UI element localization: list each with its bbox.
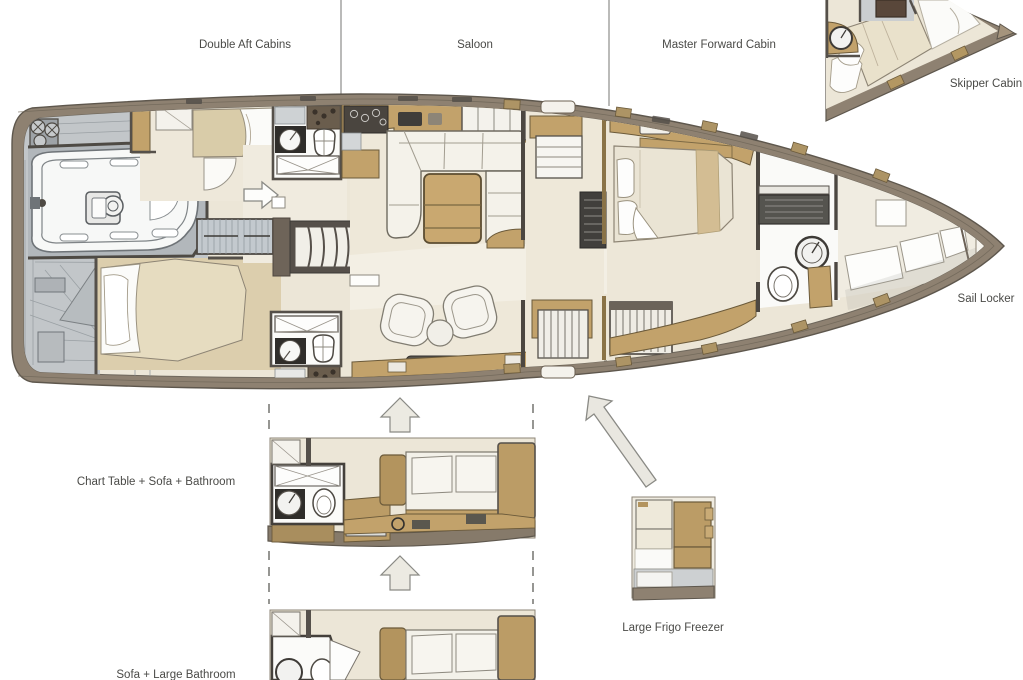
svg-text:Sofa + Large Bathroom: Sofa + Large Bathroom [116, 669, 235, 680]
svg-text:Large Frigo Freezer: Large Frigo Freezer [622, 622, 724, 634]
svg-text:Chart Table + Sofa + Bathroom: Chart Table + Sofa + Bathroom [77, 476, 235, 488]
svg-text:Double Aft Cabins: Double Aft Cabins [199, 39, 291, 51]
svg-text:Skipper Cabin: Skipper Cabin [950, 78, 1022, 90]
svg-text:Sail Locker: Sail Locker [958, 293, 1015, 305]
svg-text:Master Forward Cabin: Master Forward Cabin [662, 39, 776, 51]
svg-text:Saloon: Saloon [457, 39, 493, 51]
